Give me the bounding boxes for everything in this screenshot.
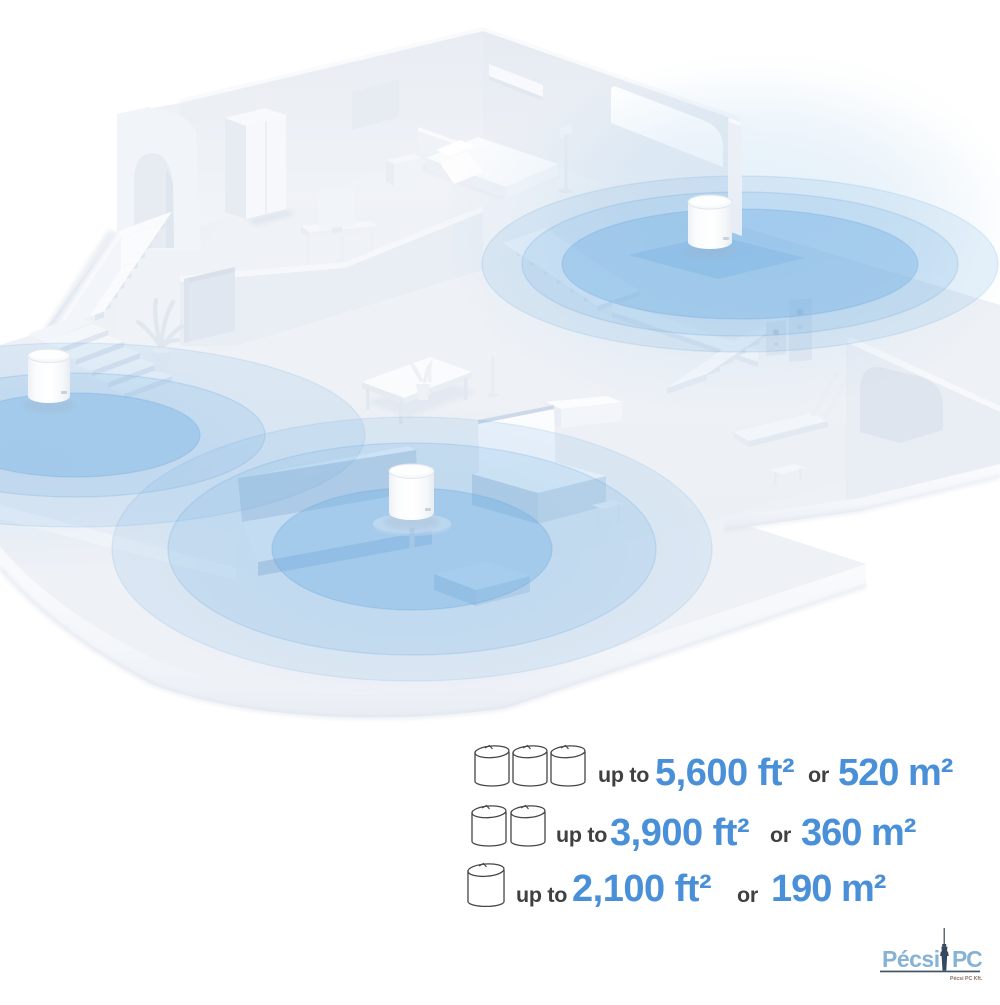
svg-text:5,600 ft²: 5,600 ft² [655,752,794,794]
svg-text:PC: PC [952,946,982,972]
svg-text:up to: up to [516,883,567,907]
svg-text:up to: up to [556,823,607,847]
svg-text:3,900 ft²: 3,900 ft² [610,812,749,854]
svg-text:2,100 ft²: 2,100 ft² [572,868,711,910]
svg-text:or: or [737,883,759,907]
svg-text:Pécsi: Pécsi [882,946,940,972]
svg-text:or: or [808,763,830,787]
svg-text:360 m²: 360 m² [801,812,916,854]
svg-text:190 m²: 190 m² [771,868,886,910]
svg-text:Pécsi PC Kft.: Pécsi PC Kft. [950,976,983,982]
svg-text:up to: up to [598,763,649,787]
svg-text:or: or [770,823,792,847]
svg-text:520 m²: 520 m² [838,752,953,794]
